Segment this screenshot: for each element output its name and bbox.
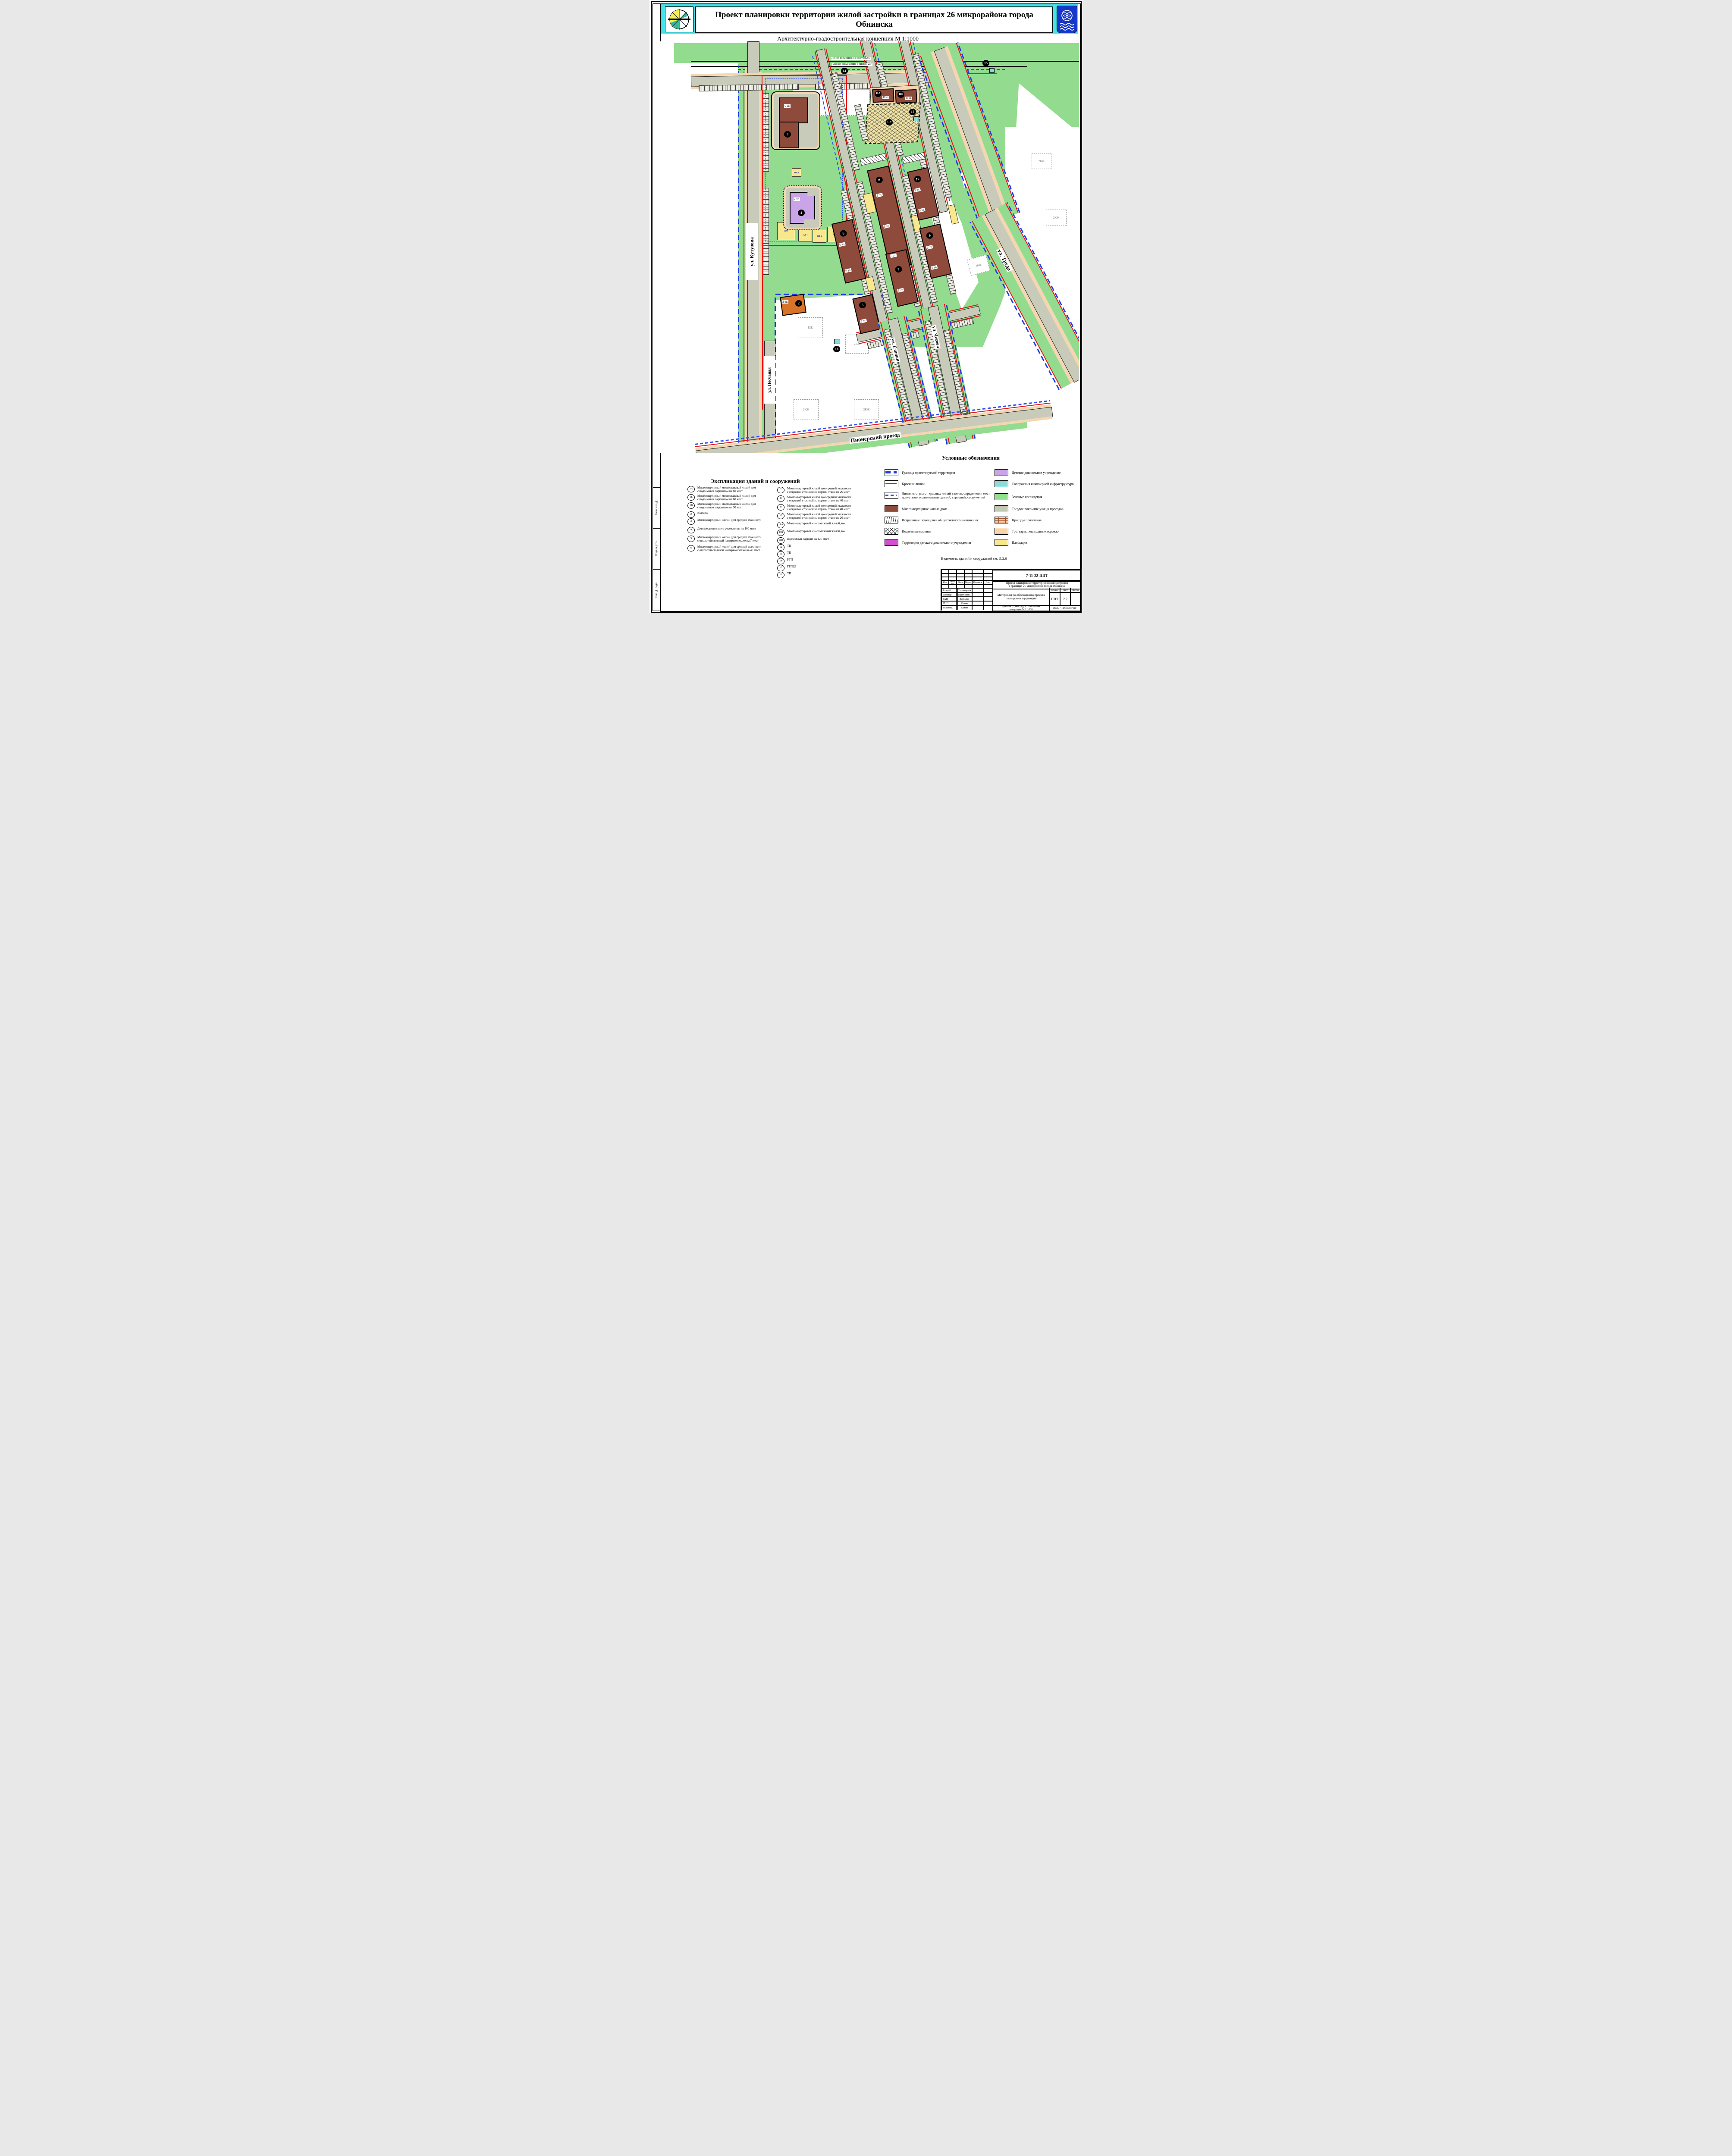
explication-item: 8Многоквартирный жилой дом средней этажн… [777,495,859,502]
floors-label: 19 эт. [882,96,889,99]
emblem-icon [1057,6,1077,33]
legend-row: Проезды плиточные [995,517,1076,523]
tp-box-12 [913,116,919,121]
legend-row: Подземные паркинг [885,528,992,535]
marker-3: 3 [784,131,791,138]
stamp-cell [972,605,984,610]
legend-row: Красные линии [885,480,992,487]
stamp-role: Н.контр. [941,605,958,610]
stamp-company: ООО "Технология" [1049,605,1081,611]
existing-building: 2КЖ [1032,154,1051,169]
side-cell-podp: Подп. и дата [653,528,660,570]
sheet: Взам. инв.№ Подп. и дата Инв.№ подл. Про… [649,0,1082,613]
floors-label: 5 эт. [784,104,791,108]
street-label-peschanaya: ул. Песчаная [764,356,775,404]
pavement-symbol [995,505,1008,512]
explication-item: 14РТП [777,558,859,564]
logo-box [665,6,693,32]
building-2-cottage [780,294,806,316]
legend-row: Линии отступа от красных линий в целях о… [885,492,992,499]
floors-label: 2 эт. [794,197,800,201]
side-strip-empty [653,3,660,488]
stamp-subtitle: Архитектурно-градостроительная концепция… [992,605,1050,611]
marker-15: 15 [982,60,989,66]
city-emblem [1057,6,1077,33]
title-box: Проект планировки территории жилой застр… [695,6,1053,33]
legend-row: Детское дошкольное учреждение [995,469,1076,476]
existing-building: КЖ [798,317,823,338]
explication-item: 6Многоквартирный жилой дом средней этажн… [687,545,774,552]
playground-pd4: ПД-4 [792,168,801,177]
legend-row: Встроенные помещения общественного назна… [885,517,992,523]
explication-item: 11АМногоквартирный многоэтажный жилой до… [777,522,859,528]
playground-pd2: ПД-2 [813,230,826,243]
explication-item: 3Многоквартирный жилой дом средней этажн… [687,518,774,525]
red-line-symbol [885,480,898,487]
legend-row: Территория детского дошкольного учрежден… [885,539,992,546]
explication-item: 1БМногоквартирный многоэтажный жилой дом… [687,494,774,501]
alignment-label-2: Линия совмещения с листом 2.7 [832,63,872,66]
side-label: Взам. инв.№ [655,500,658,516]
ddu-symbol [995,469,1008,476]
stamp-stage-value: ППТ [1049,592,1061,606]
note: Ведомость зданий и сооружений см. Л.2.6 [941,556,1007,561]
floors-label: 3 эт. [782,300,788,304]
stamp-sheet-value: 2.7 [1060,592,1071,606]
grounds-symbol [995,539,1008,546]
explication-item: 9Многоквартирный жилой дом средней этажн… [777,504,859,511]
marker-4: 4 [798,210,805,216]
marker-2: 2 [795,300,802,307]
infrastructure-symbol [995,480,1008,487]
explication-title: Экспликация зданий и сооружений [697,478,813,485]
tiled-driveways-symbol [995,517,1008,523]
stamp-cell [983,605,993,610]
explication-item: 12ТП [777,544,859,551]
explication-item: 10Многоквартирный жилой дом средней этаж… [777,513,859,520]
legend-title: Условные обозначения [926,454,1016,461]
legend-row: Зеленые насаждения [995,493,1076,500]
legend-row: Площадки [995,539,1076,546]
stamp-name: Котов [956,605,973,610]
project-boundary-line [738,66,739,445]
page-title: Проект планировки территории жилой застр… [696,10,1052,29]
boundary-symbol [885,469,898,476]
legend-row: Граница проектируемой территории [885,469,992,476]
site-plan: 21КЖ 3КЖ КЖ 2КЖ 2КЖ 2КЖ 2КЖ 2КЖ 2КЖ 2КЖ … [660,41,1079,453]
legend-row: Многоквартирные жилые дома [885,505,992,512]
legend-row: Тротуары, пешеходные дорожки [995,528,1076,535]
side-label: Подп. и дата [655,541,658,556]
builtin-symbol [885,517,898,523]
legend-row: Сооружения инженерной инфраструктуры [995,480,1076,487]
marker-16: 16 [833,346,840,352]
compass-logo-icon [665,7,693,32]
explication-item: 4Детское дошкольное учреждение на 100 ме… [687,527,774,533]
setback-symbol [885,492,898,499]
marker-11a: 11А [875,91,882,97]
explication-item: 15ГРПШ [777,565,859,571]
underground-parking [860,153,887,166]
marker-11b: 11Б [897,91,904,98]
alignment-label-1: Линия совмещения с листом 2.6 [831,57,871,60]
stamp-sheets-value [1070,592,1081,606]
floors-label: 19 эт. [905,97,912,100]
underground-parking-symbol [885,528,898,535]
explication-item: 11ВПодземный паркинг на 125 мест [777,537,859,544]
street-label-kutuzova: ул. Кутузова [746,223,758,280]
red-line [744,72,744,448]
side-label: Инв.№ подл. [655,582,658,598]
marker-11v: 11В [886,119,893,125]
playground [948,204,958,224]
side-cell-inv: Инв.№ подл. [653,569,660,611]
grpsh-box [989,68,995,73]
title-block: Изм. Кол. уч. Лист №док. Подпись Дата Ра… [941,569,1082,612]
existing-building: 2КЖ [854,399,879,420]
explication-item: 16ТП [777,572,859,578]
explication-item: 5Многоквартирный жилой дом средней этажн… [687,536,774,542]
explication-item: 2Коттедж [687,511,774,518]
marker-12: 12 [909,109,916,115]
outside-area [660,43,674,195]
building-4-kindergarten [790,192,815,224]
legend-row: Твердое покрытие улиц и проездов [995,505,1076,512]
sidewalks-symbol [995,528,1008,535]
stamp-section: Материалы по обоснованию проекта планиро… [992,588,1050,606]
tp-box-16 [834,339,840,344]
ddu-territory-symbol [885,539,898,546]
explication-item: 13ТП [777,551,859,558]
outside-area [660,195,738,453]
playground-pd1: ПД-1 [798,229,812,241]
existing-building: 2КЖ [794,399,819,420]
homes-symbol [885,505,898,512]
explication-item: 1ВМногоквартирный многоэтажный жилой дом… [687,502,774,509]
explication-item: 1АМногоквартирный многоэтажный жилой дом… [687,486,774,493]
explication-item: 11БМногоквартирный многоэтажный жилой до… [777,530,859,536]
explication-item: 7Многоквартирный жилой дом средней этажн… [777,487,859,494]
existing-building: 2КЖ [1046,210,1067,226]
marker-14: 14 [841,68,848,74]
side-cell-vzam: Взам. инв.№ [653,487,660,529]
greenery-symbol [995,493,1008,500]
